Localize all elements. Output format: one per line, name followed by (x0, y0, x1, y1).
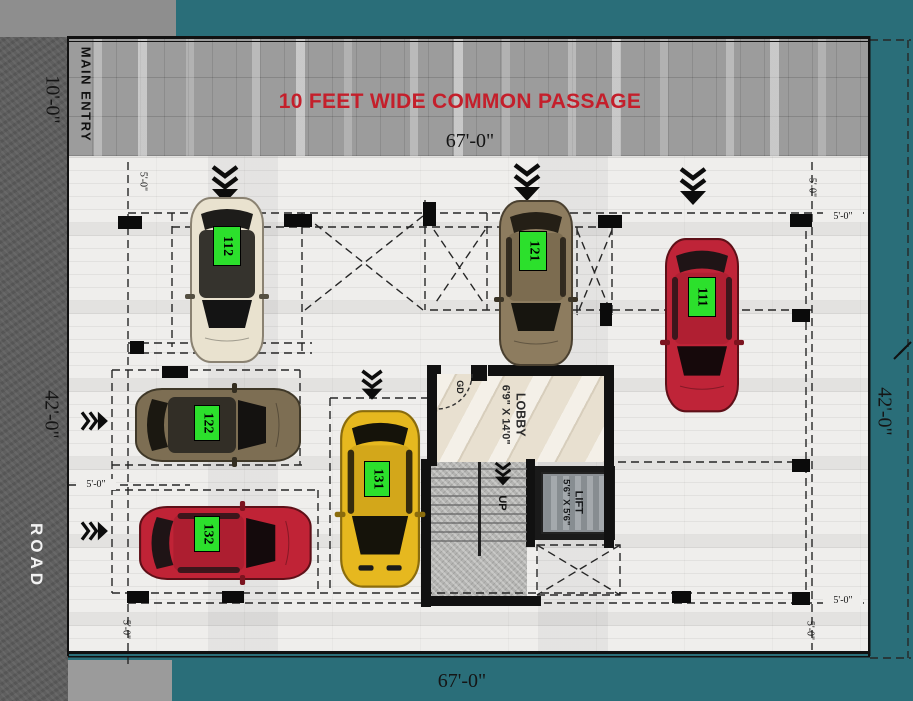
dim-small: 5'-0" (121, 610, 132, 650)
dim-right: 42'-0" (873, 367, 896, 457)
stairs-up-label: UP (496, 488, 508, 518)
dim-left: 42'-0" (40, 370, 63, 460)
spot-label-111: 111 (688, 277, 716, 317)
dim-small: 5'-0" (823, 211, 863, 222)
dim-small: 5'-0" (823, 595, 863, 606)
dim-top: 67'-0" (420, 130, 520, 153)
car-121 (494, 201, 578, 365)
down-arrow-icon (680, 169, 706, 205)
dim-small: 5'-0" (807, 168, 818, 208)
lift-size: 5'6" X 5'6" (560, 467, 571, 537)
spot-label-131: 131 (364, 461, 390, 497)
car-111 (660, 239, 744, 411)
stair-treads (431, 462, 527, 556)
main-entry-label: MAIN ENTRY (79, 35, 94, 155)
lobby-name: LOBBY (512, 360, 528, 470)
spot-label-122: 122 (194, 405, 220, 441)
down-arrow-icon (362, 371, 383, 400)
lobby-size: 6'9" X 14'0" (498, 360, 512, 470)
spot-label-132: 132 (194, 516, 220, 552)
spot-label-121: 121 (519, 231, 547, 271)
down-arrow-icon (514, 165, 540, 201)
entry-arrow-icon (82, 412, 108, 431)
lift-label: LIFT 5'6" X 5'6" (560, 467, 585, 537)
entry-arrow-icon (82, 522, 108, 541)
car-112 (185, 198, 269, 362)
passage-title: 10 FEET WIDE COMMON PASSAGE (180, 90, 740, 114)
spot-label-112: 112 (213, 226, 241, 266)
dim-small: 5'-0" (805, 611, 816, 651)
lift-name: LIFT (571, 467, 584, 537)
car-131 (335, 411, 426, 586)
car-132 (140, 501, 311, 585)
dim-small: 5'-0" (138, 162, 149, 202)
dim-entry-width: 10'-0" (41, 60, 64, 140)
parking-floor-plan: 10 FEET WIDE COMMON PASSAGE 67'-0" 67'-0… (0, 0, 913, 701)
dim-small: 5'-0" (76, 479, 116, 490)
lobby-label: LOBBY 6'9" X 14'0" (498, 360, 527, 470)
dim-bottom: 67'-0" (412, 670, 512, 693)
lobby-door-label: GD (455, 375, 465, 399)
road-label: ROAD (26, 511, 46, 601)
